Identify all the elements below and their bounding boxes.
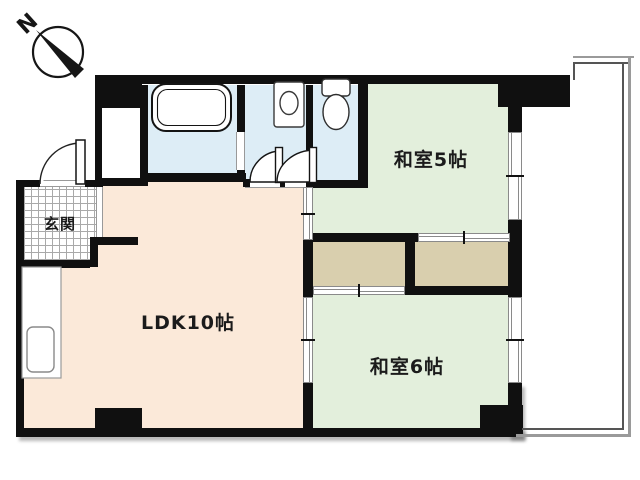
window-washitsu5	[508, 132, 522, 220]
wall-segment	[140, 85, 148, 182]
room-washroom-floor	[245, 85, 306, 180]
sliding-door-closet-left	[313, 286, 405, 295]
bathroom-door	[236, 132, 245, 170]
wall-segment	[280, 179, 285, 187]
balcony-railing	[573, 56, 634, 58]
closet-left-floor	[313, 242, 405, 286]
balcony-railing	[628, 56, 631, 436]
wall-segment	[306, 85, 313, 150]
wall-segment	[16, 180, 24, 437]
wall-segment	[303, 383, 313, 433]
room-toilet-floor	[306, 85, 358, 180]
floor-plan: N	[0, 0, 640, 480]
wall-segment	[16, 428, 523, 437]
sliding-door-washitsu5	[303, 187, 313, 240]
room-bathroom-floor	[148, 85, 237, 173]
wall-segment	[405, 286, 515, 295]
wall-segment	[303, 233, 418, 242]
wall-segment	[237, 85, 245, 132]
wall-segment	[16, 180, 40, 187]
balcony-railing	[522, 428, 624, 430]
room-washitsu5-extension-floor	[313, 188, 366, 233]
entrance-threshold	[40, 180, 85, 187]
wall-segment	[16, 260, 90, 268]
wall-pillar	[498, 75, 570, 107]
room-label-washitsu6: 和室6帖	[332, 352, 482, 379]
entrance-door-icon	[40, 140, 85, 184]
sliding-door-closet-right	[418, 233, 510, 242]
compass-north-letter: N	[13, 9, 43, 40]
window-washitsu6	[508, 297, 522, 383]
wall-segment	[85, 180, 103, 187]
closet-right-floor	[415, 242, 508, 286]
wall-pillar	[95, 75, 142, 108]
room-label-genkan: 玄関	[24, 213, 96, 234]
genkan-step	[96, 187, 103, 237]
wall-segment	[90, 237, 138, 245]
wall-segment	[306, 180, 366, 188]
wall-segment	[90, 245, 98, 267]
room-label-washitsu5: 和室5帖	[356, 145, 506, 172]
wall-segment	[95, 75, 507, 84]
room-label-ldk: LDK10帖	[98, 308, 278, 335]
wall-segment	[508, 107, 522, 132]
wall-pillar	[95, 408, 142, 432]
sliding-door-washitsu6	[303, 297, 313, 383]
wall-segment	[243, 179, 250, 187]
balcony-railing	[622, 62, 624, 428]
balcony-railing	[516, 434, 631, 437]
wall-segment	[95, 85, 102, 186]
balcony-railing	[573, 62, 628, 64]
compass-icon: N	[13, 9, 84, 78]
balcony-railing	[573, 62, 575, 80]
wall-segment	[140, 173, 246, 182]
wall-segment	[303, 233, 313, 297]
wall-segment	[405, 242, 415, 288]
wall-segment	[508, 220, 522, 297]
